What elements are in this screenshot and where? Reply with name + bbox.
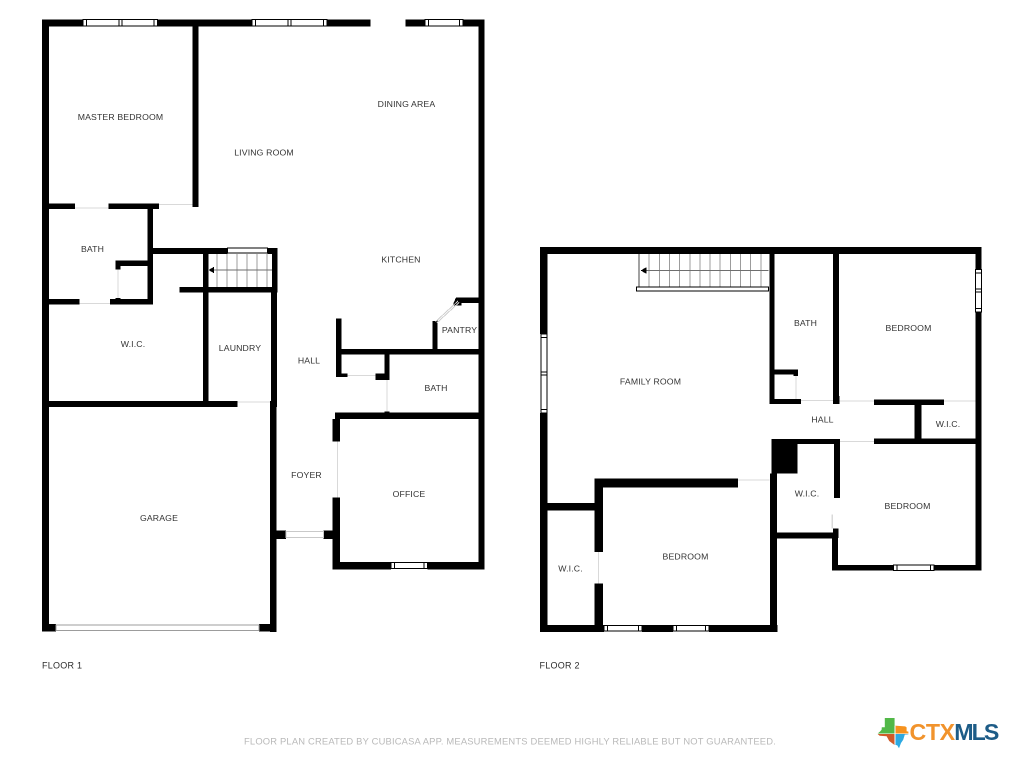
svg-text:LAUNDRY: LAUNDRY bbox=[219, 343, 261, 353]
svg-text:OFFICE: OFFICE bbox=[393, 489, 426, 499]
svg-text:CTXMLS: CTXMLS bbox=[910, 719, 999, 745]
svg-text:W.I.C.: W.I.C. bbox=[795, 489, 820, 499]
svg-text:FAMILY ROOM: FAMILY ROOM bbox=[620, 377, 681, 387]
svg-text:GARAGE: GARAGE bbox=[140, 513, 178, 523]
svg-text:KITCHEN: KITCHEN bbox=[381, 255, 420, 265]
svg-text:BATH: BATH bbox=[424, 383, 447, 393]
svg-text:HALL: HALL bbox=[298, 356, 320, 366]
svg-text:FOYER: FOYER bbox=[291, 470, 322, 480]
svg-text:BEDROOM: BEDROOM bbox=[886, 323, 932, 333]
svg-text:BEDROOM: BEDROOM bbox=[663, 552, 709, 562]
svg-text:LIVING ROOM: LIVING ROOM bbox=[234, 148, 294, 158]
svg-text:W.I.C.: W.I.C. bbox=[558, 564, 583, 574]
svg-text:BEDROOM: BEDROOM bbox=[885, 501, 931, 511]
svg-text:FLOOR 2: FLOOR 2 bbox=[540, 661, 580, 671]
svg-text:DINING AREA: DINING AREA bbox=[378, 99, 436, 109]
svg-text:FLOOR 1: FLOOR 1 bbox=[42, 661, 82, 671]
svg-text:FLOOR PLAN CREATED BY CUBICASA: FLOOR PLAN CREATED BY CUBICASA APP. MEAS… bbox=[244, 736, 776, 747]
svg-text:BATH: BATH bbox=[81, 244, 104, 254]
svg-text:W.I.C.: W.I.C. bbox=[121, 339, 146, 349]
svg-text:HALL: HALL bbox=[811, 415, 833, 425]
svg-text:PANTRY: PANTRY bbox=[442, 325, 477, 335]
svg-text:W.I.C.: W.I.C. bbox=[936, 419, 961, 429]
svg-text:BATH: BATH bbox=[794, 318, 817, 328]
svg-text:MASTER BEDROOM: MASTER BEDROOM bbox=[78, 112, 164, 122]
